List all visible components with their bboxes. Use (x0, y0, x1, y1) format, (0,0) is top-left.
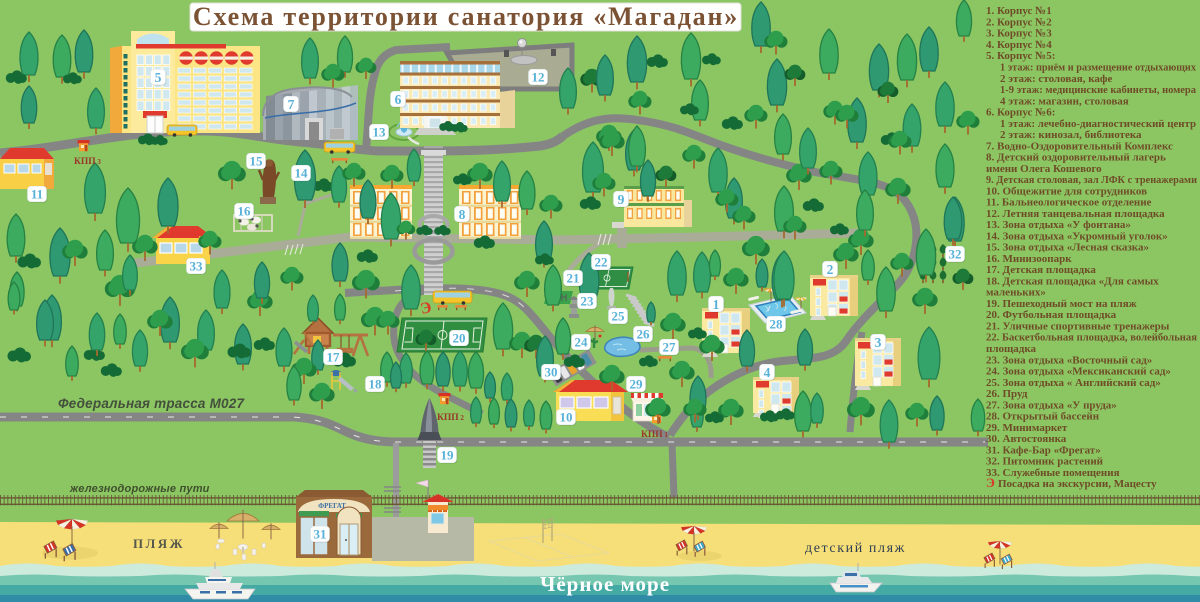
svg-text:Чёрное море: Чёрное море (540, 572, 670, 596)
svg-text:9. Детская столовая, зал ЛФК с: 9. Детская столовая, зал ЛФК с тренажера… (986, 174, 1198, 186)
svg-text:28. Открытый бассейн: 28. Открытый бассейн (986, 411, 1100, 423)
svg-text:2 этаж: столовая, кафе: 2 этаж: столовая, кафе (1000, 73, 1112, 85)
svg-text:32: 32 (949, 247, 962, 262)
svg-text:8: 8 (459, 207, 466, 222)
svg-text:Схема территории санатория «Ма: Схема территории санатория «Магадан» (193, 2, 739, 31)
svg-text:15: 15 (250, 154, 264, 169)
svg-text:4 этаж: магазин, столовая: 4 этаж: магазин, столовая (1000, 95, 1129, 107)
svg-text:КПП 1: КПП 1 (641, 430, 668, 440)
svg-text:1: 1 (713, 297, 720, 312)
svg-text:КПП 3: КПП 3 (74, 157, 101, 167)
svg-text:18: 18 (369, 377, 383, 392)
svg-text:ПЛЯЖ: ПЛЯЖ (133, 536, 185, 551)
svg-text:14. Зона отдыха «Укромный угол: 14. Зона отдыха «Укромный уголок» (986, 230, 1168, 242)
svg-text:17: 17 (327, 350, 341, 365)
svg-text:имени Олега Кошевого: имени Олега Кошевого (986, 163, 1102, 175)
svg-text:29: 29 (630, 377, 644, 392)
svg-text:21: 21 (567, 271, 580, 286)
svg-text:21. Уличные спортивные тренаже: 21. Уличные спортивные тренажеры (986, 321, 1170, 333)
svg-text:7: 7 (288, 97, 295, 112)
svg-text:23: 23 (581, 294, 595, 309)
svg-text:22: 22 (595, 255, 608, 270)
svg-text:1. Корпус №1: 1. Корпус №1 (986, 5, 1052, 17)
svg-text:2 этаж: кинозал, библиотека: 2 этаж: кинозал, библиотека (1000, 129, 1142, 141)
svg-text:23. Зона отдыха «Восточный сад: 23. Зона отдыха «Восточный сад» (986, 354, 1152, 366)
svg-text:27: 27 (663, 340, 677, 355)
svg-text:1 этаж: приём и размещение отд: 1 этаж: приём и размещение отдыхающих (1000, 62, 1196, 74)
svg-text:26: 26 (637, 327, 651, 342)
svg-text:2: 2 (827, 262, 834, 277)
svg-text:29. Минимаркет: 29. Минимаркет (986, 422, 1068, 434)
svg-text:24. Зона отдыха «Мексиканский: 24. Зона отдыха «Мексиканский сад» (986, 366, 1171, 378)
svg-text:16: 16 (238, 204, 252, 219)
svg-text:30: 30 (545, 365, 558, 380)
svg-text:9: 9 (618, 192, 625, 207)
svg-text:19. Пешеходный мост на пляж: 19. Пешеходный мост на пляж (986, 298, 1137, 310)
svg-text:16. Минизоопарк: 16. Минизоопарк (986, 253, 1072, 265)
svg-text:детский пляж: детский пляж (805, 541, 906, 556)
svg-text:13: 13 (373, 125, 387, 140)
svg-text:15. Зона отдыха «Лесная сказка: 15. Зона отдыха «Лесная сказка» (986, 242, 1149, 254)
svg-text:28: 28 (770, 317, 784, 332)
svg-text:25. Зона отдыха « Английский с: 25. Зона отдыха « Английский сад» (986, 377, 1161, 389)
svg-text:1 этаж: лечебно-диагностически: 1 этаж: лечебно-диагностический центр (1000, 118, 1196, 130)
svg-text:площадка: площадка (986, 343, 1037, 355)
svg-text:31. Кафе-Бар «Фрегат»: 31. Кафе-Бар «Фрегат» (986, 444, 1101, 456)
svg-text:25: 25 (612, 309, 626, 324)
svg-text:железнодорожные пути: железнодорожные пути (69, 483, 210, 495)
svg-text:Посадка на экскурсии, Мацесту: Посадка на экскурсии, Мацесту (998, 478, 1157, 490)
svg-text:30. Автостоянка: 30. Автостоянка (986, 433, 1067, 445)
svg-text:2. Корпус №2: 2. Корпус №2 (986, 17, 1052, 29)
svg-text:1-9 этаж: медицинские кабинеты: 1-9 этаж: медицинские кабинеты, номера (1000, 84, 1196, 96)
svg-text:5: 5 (155, 70, 162, 85)
svg-text:КПП 2: КПП 2 (437, 413, 464, 423)
svg-text:маленьких»: маленьких» (986, 287, 1046, 299)
svg-text:32. Питомник растений: 32. Питомник растений (986, 456, 1104, 468)
svg-text:27. Зона отдыха «У пруда»: 27. Зона отдыха «У пруда» (986, 399, 1117, 411)
svg-text:24: 24 (575, 335, 589, 350)
svg-text:12: 12 (532, 70, 545, 85)
svg-text:18. Детская площадка «Для самы: 18. Детская площадка «Для самых (986, 275, 1159, 287)
svg-text:11: 11 (31, 187, 43, 202)
svg-text:4: 4 (764, 365, 771, 380)
svg-text:13. Зона отдыха «У фонтана»: 13. Зона отдыха «У фонтана» (986, 219, 1131, 231)
svg-text:19: 19 (441, 448, 455, 463)
svg-text:3. Корпус №3: 3. Корпус №3 (986, 28, 1052, 40)
svg-text:3: 3 (875, 335, 882, 350)
svg-text:31: 31 (314, 527, 327, 542)
svg-text:4. Корпус №4: 4. Корпус №4 (986, 39, 1052, 51)
svg-text:8. Детский оздоровительный лаг: 8. Детский оздоровительный лагерь (986, 152, 1166, 164)
svg-text:33: 33 (190, 259, 204, 274)
svg-text:26. Пруд: 26. Пруд (986, 388, 1028, 400)
svg-text:33. Служебные помещения: 33. Служебные помещения (986, 467, 1120, 479)
svg-text:22. Баскетбольная площадка, во: 22. Баскетбольная площадка, волейбольная (986, 332, 1197, 344)
svg-text:10: 10 (560, 410, 573, 425)
svg-text:6: 6 (395, 92, 402, 107)
svg-text:Э: Э (986, 475, 995, 490)
svg-text:6. Корпус №6:: 6. Корпус №6: (986, 107, 1055, 119)
svg-text:7. Водно-Оздоровительный Компл: 7. Водно-Оздоровительный Комплекс (986, 140, 1173, 152)
svg-text:12. Летняя танцевальная площад: 12. Летняя танцевальная площадка (986, 208, 1165, 220)
svg-text:20. Футбольная площадка: 20. Футбольная площадка (986, 309, 1117, 321)
svg-text:10. Общежитие для сотрудников: 10. Общежитие для сотрудников (986, 185, 1147, 197)
svg-text:5. Корпус №5:: 5. Корпус №5: (986, 50, 1055, 62)
svg-text:Федеральная трасса М027: Федеральная трасса М027 (58, 396, 245, 411)
svg-text:17. Детская площадка: 17. Детская площадка (986, 264, 1096, 276)
svg-text:20: 20 (453, 331, 466, 346)
svg-text:11. Бальнеологическое отделени: 11. Бальнеологическое отделение (986, 197, 1152, 209)
svg-text:14: 14 (295, 166, 309, 181)
